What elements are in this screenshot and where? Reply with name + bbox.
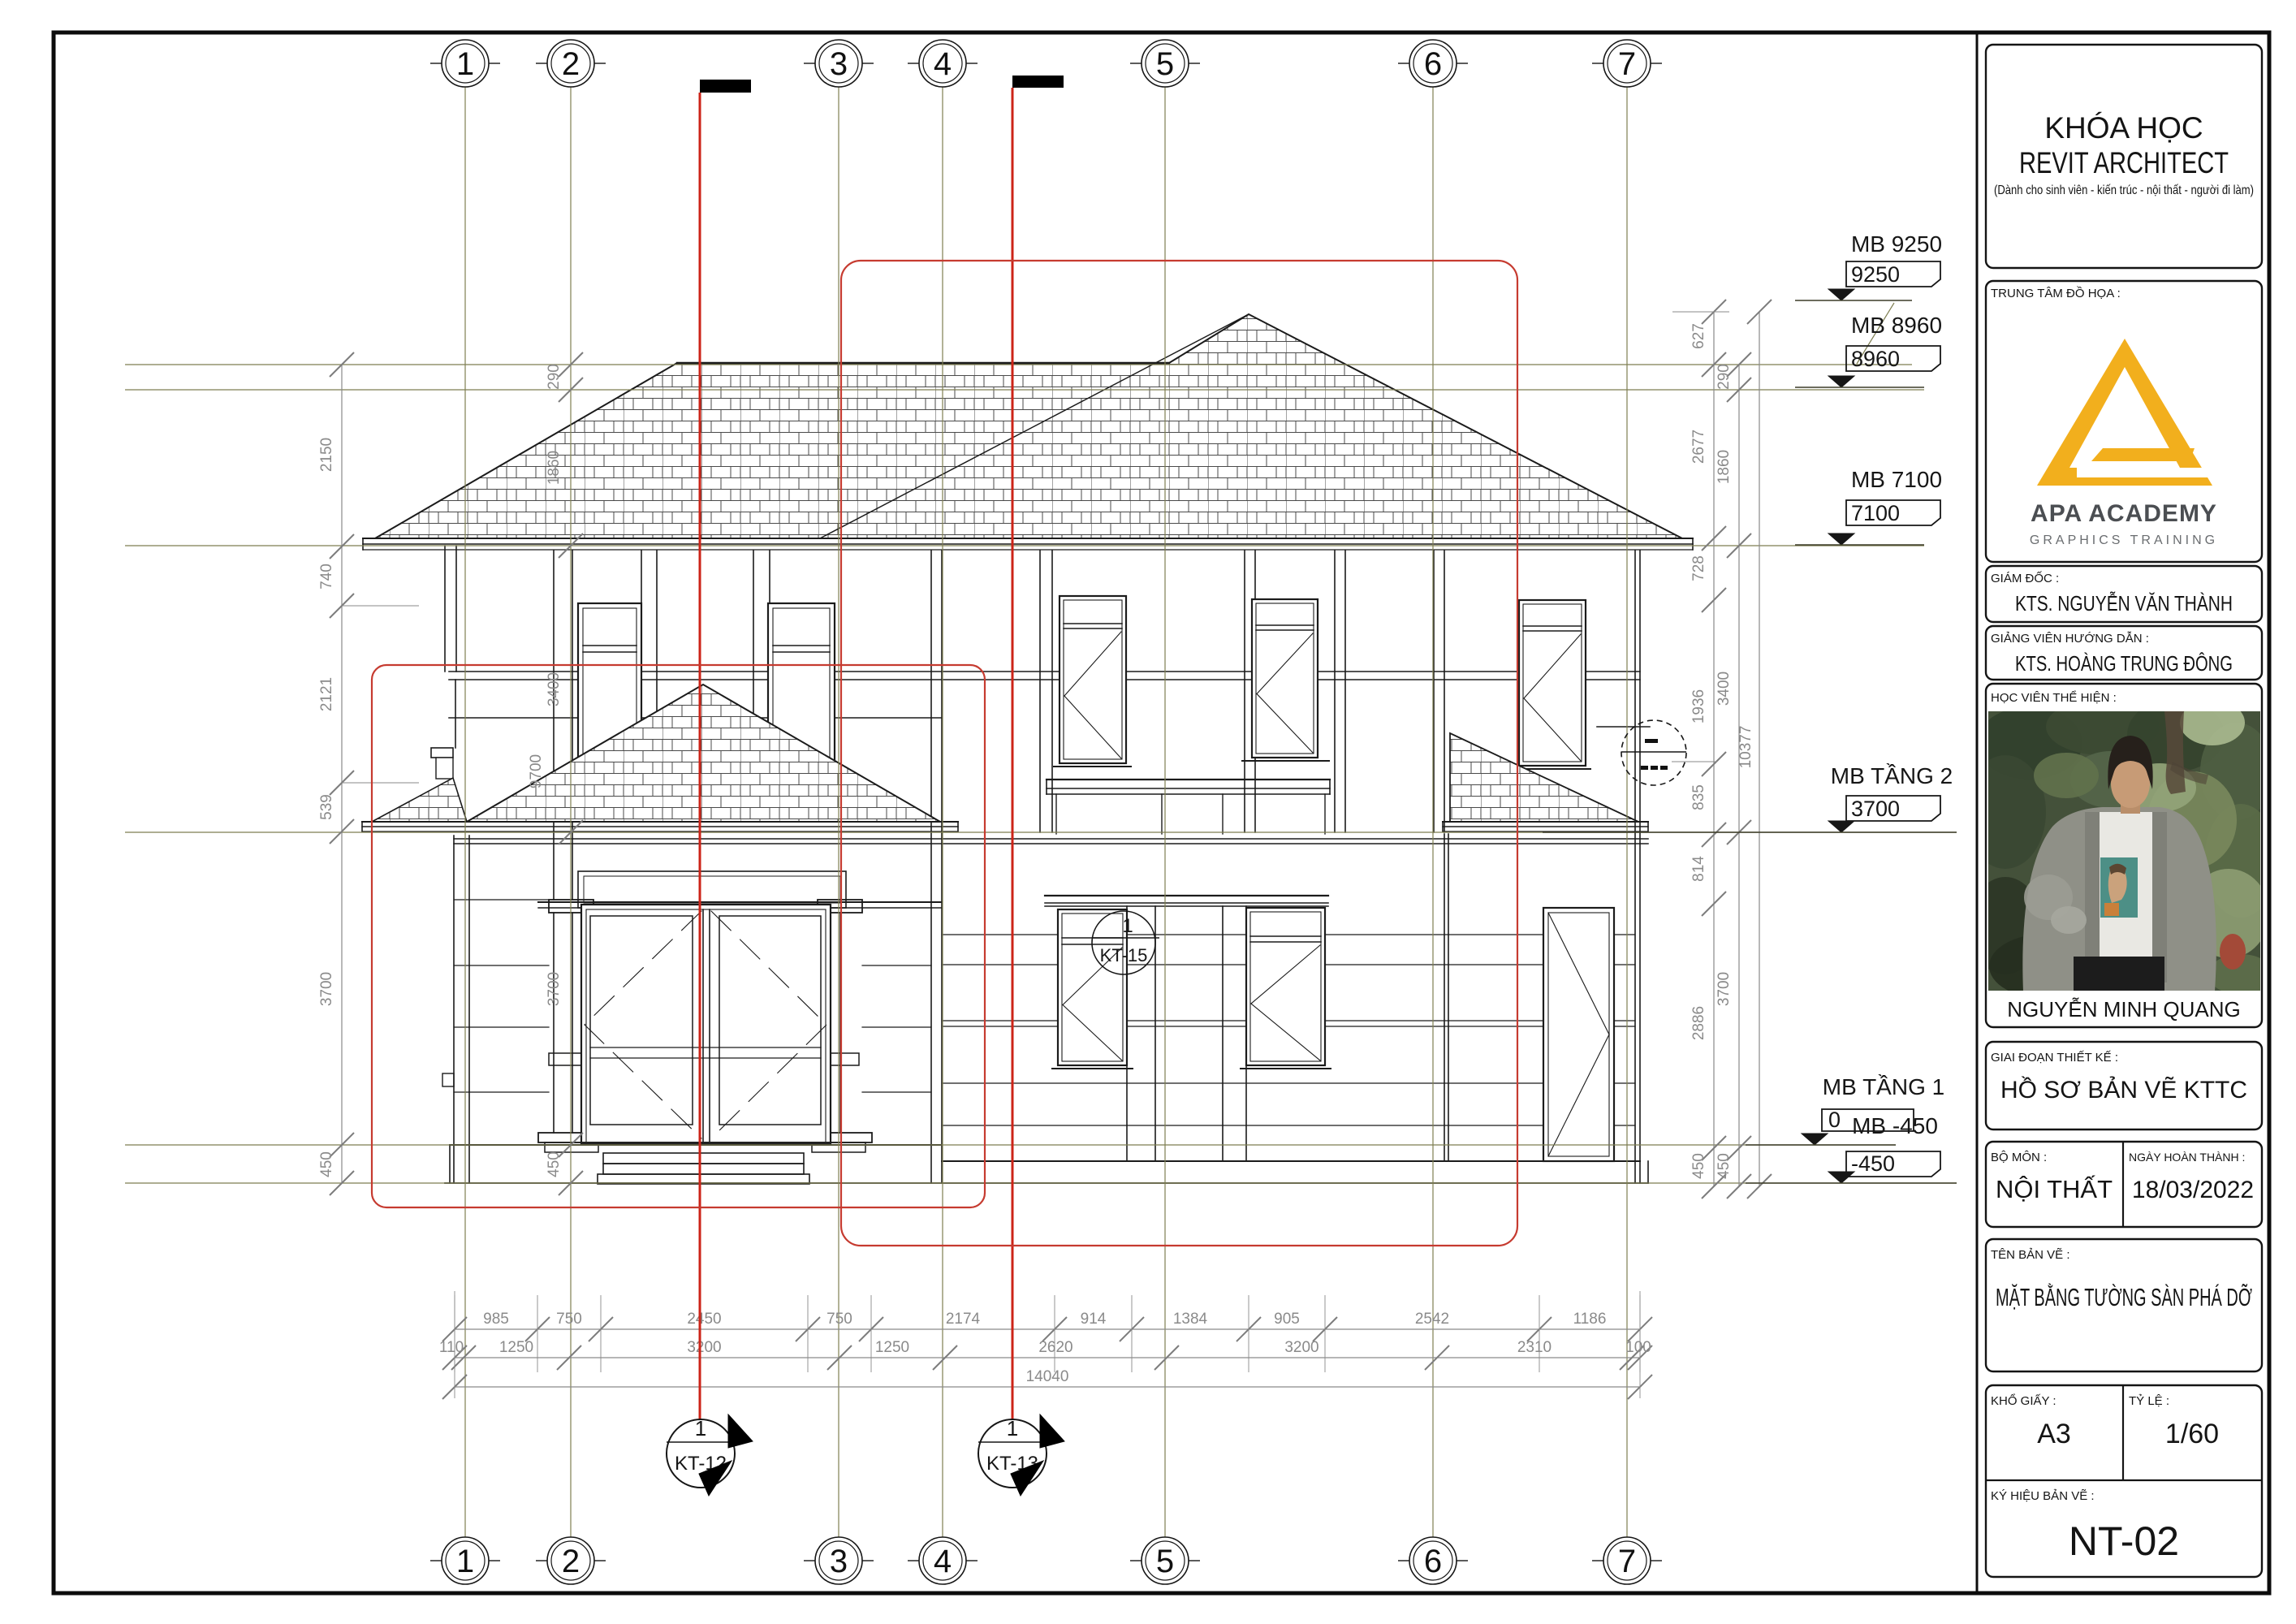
svg-text:10377: 10377 xyxy=(1737,726,1754,769)
svg-text:2: 2 xyxy=(562,1544,580,1579)
svg-text:728: 728 xyxy=(1690,555,1707,581)
svg-text:3700: 3700 xyxy=(546,972,563,1006)
svg-text:GIÁM ĐỐC :: GIÁM ĐỐC : xyxy=(1991,571,2059,585)
svg-text:4: 4 xyxy=(934,46,952,82)
svg-text:GRAPHICS TRAINING: GRAPHICS TRAINING xyxy=(2030,533,2218,547)
svg-text:4: 4 xyxy=(934,1544,952,1579)
svg-text:1: 1 xyxy=(456,46,474,82)
svg-text:9700: 9700 xyxy=(528,754,545,788)
svg-text:TÊN BẢN VẼ :: TÊN BẢN VẼ : xyxy=(1991,1248,2070,1262)
svg-text:GIẢNG VIÊN HƯỚNG DẪN :: GIẢNG VIÊN HƯỚNG DẪN : xyxy=(1991,632,2149,646)
svg-text:6: 6 xyxy=(1424,46,1442,82)
svg-text:MB -450: MB -450 xyxy=(1852,1113,1938,1138)
svg-text:KHÓA HỌC: KHÓA HỌC xyxy=(2044,111,2203,145)
svg-text:KÝ HIỆU BẢN VẼ :: KÝ HIỆU BẢN VẼ : xyxy=(1991,1489,2095,1503)
svg-text:MB TẦNG 1: MB TẦNG 1 xyxy=(1823,1074,1944,1099)
svg-text:985: 985 xyxy=(483,1311,509,1328)
svg-text:750: 750 xyxy=(556,1311,582,1328)
svg-text:9250: 9250 xyxy=(1851,262,1900,287)
svg-text:5: 5 xyxy=(1156,1544,1174,1579)
svg-text:539: 539 xyxy=(318,794,335,820)
svg-text:6: 6 xyxy=(1424,1544,1442,1579)
svg-text:100: 100 xyxy=(1625,1339,1651,1356)
svg-text:KHỔ GIẤY :: KHỔ GIẤY : xyxy=(1991,1393,2056,1408)
svg-text:290: 290 xyxy=(546,364,563,390)
svg-text:3: 3 xyxy=(830,46,848,82)
svg-text:3200: 3200 xyxy=(687,1339,721,1356)
svg-text:TỶ LỆ :: TỶ LỆ : xyxy=(2129,1394,2169,1408)
svg-text:2310: 2310 xyxy=(1517,1339,1552,1356)
svg-text:750: 750 xyxy=(826,1311,852,1328)
svg-text:450: 450 xyxy=(546,1151,563,1177)
svg-text:MB 7100: MB 7100 xyxy=(1851,467,1942,492)
svg-text:450: 450 xyxy=(1690,1153,1707,1179)
svg-text:18/03/2022: 18/03/2022 xyxy=(2132,1177,2254,1203)
svg-text:KT-15: KT-15 xyxy=(1100,945,1148,965)
svg-text:TRUNG TÂM ĐỒ HỌA :: TRUNG TÂM ĐỒ HỌA : xyxy=(1991,286,2121,300)
svg-text:NGÀY HOÀN THÀNH :: NGÀY HOÀN THÀNH : xyxy=(2129,1151,2245,1164)
svg-text:2450: 2450 xyxy=(687,1311,721,1328)
svg-text:MB TẦNG 2: MB TẦNG 2 xyxy=(1831,763,1953,788)
svg-text:914: 914 xyxy=(1081,1311,1107,1328)
svg-text:0: 0 xyxy=(1828,1108,1841,1132)
svg-text:3700: 3700 xyxy=(318,972,335,1006)
svg-text:-450: -450 xyxy=(1851,1151,1895,1176)
svg-text:2150: 2150 xyxy=(318,438,335,472)
svg-text:1: 1 xyxy=(695,1416,706,1440)
svg-text:2121: 2121 xyxy=(318,677,335,711)
svg-text:MB 9250: MB 9250 xyxy=(1851,231,1942,257)
svg-text:450: 450 xyxy=(1716,1153,1733,1179)
svg-text:NT-02: NT-02 xyxy=(2069,1518,2179,1564)
svg-text:627: 627 xyxy=(1690,323,1707,349)
svg-text:290: 290 xyxy=(1716,364,1733,390)
svg-text:3200: 3200 xyxy=(1284,1339,1318,1356)
svg-text:HỌC VIÊN THỂ HIỆN :: HỌC VIÊN THỂ HIỆN : xyxy=(1991,690,2117,705)
svg-text:3700: 3700 xyxy=(1716,972,1733,1006)
svg-text:905: 905 xyxy=(1274,1311,1300,1328)
svg-text:(Dành cho sinh viên - kiến trú: (Dành cho sinh viên - kiến trúc - nội th… xyxy=(1994,184,2254,197)
svg-text:814: 814 xyxy=(1690,856,1707,882)
svg-text:1860: 1860 xyxy=(1716,450,1733,484)
svg-text:2: 2 xyxy=(562,46,580,82)
svg-text:MẶT BẰNG TƯỜNG SÀN PHÁ DỠ: MẶT BẰNG TƯỜNG SÀN PHÁ DỠ xyxy=(1996,1283,2252,1311)
svg-text:NGUYỄN MINH QUANG: NGUYỄN MINH QUANG xyxy=(2007,997,2240,1021)
svg-text:1: 1 xyxy=(1122,915,1133,937)
svg-text:1384: 1384 xyxy=(1173,1311,1208,1328)
svg-text:1186: 1186 xyxy=(1573,1311,1607,1328)
svg-text:7: 7 xyxy=(1618,46,1636,82)
svg-text:3400: 3400 xyxy=(1716,672,1733,706)
svg-text:MB 8960: MB 8960 xyxy=(1851,313,1942,338)
svg-text:2886: 2886 xyxy=(1690,1006,1707,1040)
svg-text:8960: 8960 xyxy=(1851,347,1900,371)
svg-text:7100: 7100 xyxy=(1851,501,1900,525)
svg-text:14040: 14040 xyxy=(1026,1368,1069,1385)
svg-text:2677: 2677 xyxy=(1690,430,1707,464)
svg-text:835: 835 xyxy=(1690,784,1707,810)
svg-text:740: 740 xyxy=(318,564,335,590)
svg-text:2620: 2620 xyxy=(1038,1339,1072,1356)
svg-text:1250: 1250 xyxy=(875,1339,909,1356)
svg-text:1250: 1250 xyxy=(499,1339,533,1356)
svg-text:KTS. HOÀNG TRUNG ĐÔNG: KTS. HOÀNG TRUNG ĐÔNG xyxy=(2015,651,2233,676)
svg-text:2174: 2174 xyxy=(946,1311,981,1328)
svg-text:HỒ SƠ BẢN VẼ KTTC: HỒ SƠ BẢN VẼ KTTC xyxy=(2000,1076,2247,1104)
svg-text:3400: 3400 xyxy=(546,672,563,706)
svg-text:7: 7 xyxy=(1618,1544,1636,1579)
svg-text:APA ACADEMY: APA ACADEMY xyxy=(2031,500,2217,527)
svg-text:450: 450 xyxy=(318,1151,335,1177)
svg-text:1: 1 xyxy=(456,1544,474,1579)
svg-text:5: 5 xyxy=(1156,46,1174,82)
svg-text:REVIT ARCHITECT: REVIT ARCHITECT xyxy=(2019,146,2229,179)
svg-text:1: 1 xyxy=(1007,1416,1018,1440)
svg-text:110: 110 xyxy=(439,1339,464,1356)
svg-text:NỘI THẤT: NỘI THẤT xyxy=(1996,1175,2113,1203)
svg-text:1936: 1936 xyxy=(1690,689,1707,723)
svg-text:GIAI ĐOẠN THIẾT KẾ :: GIAI ĐOẠN THIẾT KẾ : xyxy=(1991,1051,2118,1065)
svg-text:2542: 2542 xyxy=(1415,1311,1449,1328)
svg-text:A3: A3 xyxy=(2037,1419,2071,1449)
svg-text:3700: 3700 xyxy=(1851,797,1900,821)
svg-text:BỘ MÔN :: BỘ MÔN : xyxy=(1991,1151,2047,1164)
svg-text:1/60: 1/60 xyxy=(2165,1419,2219,1449)
svg-text:3: 3 xyxy=(830,1544,848,1579)
svg-text:1860: 1860 xyxy=(546,451,563,485)
svg-text:KTS. NGUYỄN VĂN THÀNH: KTS. NGUYỄN VĂN THÀNH xyxy=(2015,591,2233,615)
